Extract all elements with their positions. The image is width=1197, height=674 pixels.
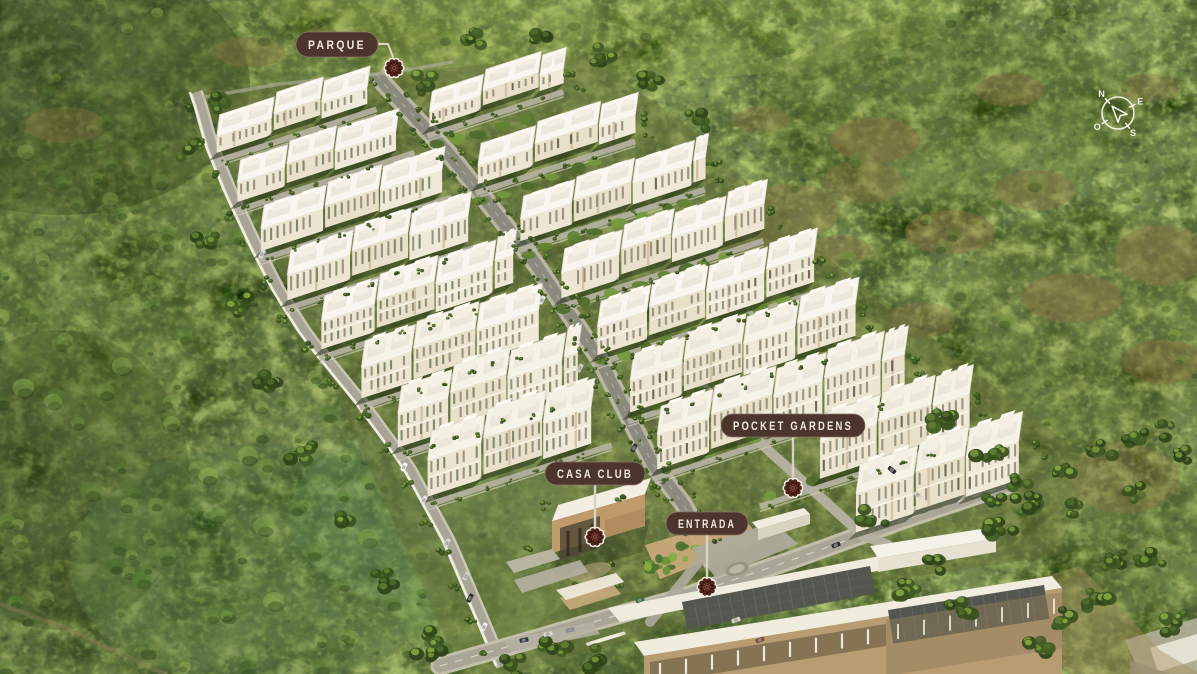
svg-text:O: O xyxy=(1094,122,1101,132)
svg-text:POCKET GARDENS: POCKET GARDENS xyxy=(733,419,853,433)
svg-text:N: N xyxy=(1098,89,1105,99)
svg-text:CASA CLUB: CASA CLUB xyxy=(557,467,633,481)
svg-text:PARQUE: PARQUE xyxy=(308,38,366,52)
svg-text:E: E xyxy=(1137,97,1143,107)
svg-text:ENTRADA: ENTRADA xyxy=(678,517,736,531)
svg-text:S: S xyxy=(1130,128,1136,138)
